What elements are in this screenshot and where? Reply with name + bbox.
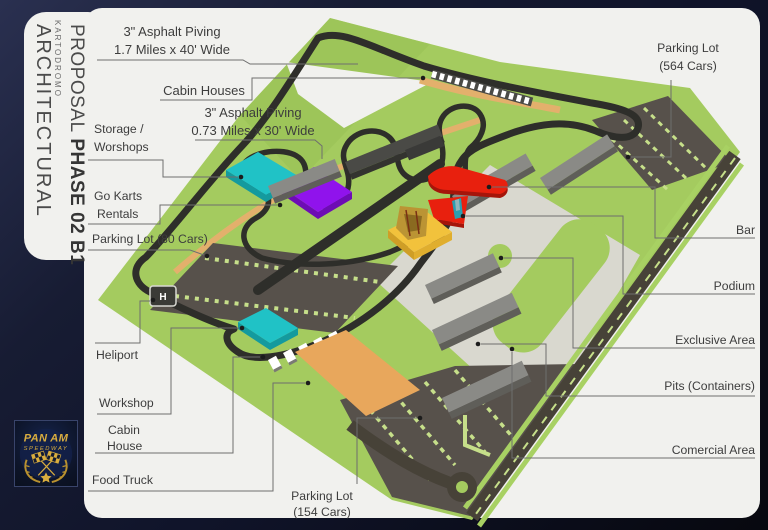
label-parking-80: Parking Lot (80 Cars) [92, 232, 208, 246]
label-exclusive-area: Exclusive Area [675, 333, 755, 347]
label-storage-line1: Storage / [94, 122, 144, 136]
label-heliport: Heliport [96, 348, 139, 362]
label-parking-564-line2: (564 Cars) [659, 59, 717, 73]
pan-am-speedway-logo: PAN AM SPEEDWAY [14, 420, 78, 487]
label-gokarts-line2: Rentals [97, 207, 138, 221]
logo-panam-text: PAN AM [24, 432, 69, 444]
label-asphalt-1-7-line1: 3" Asphalt Piving [123, 24, 220, 39]
label-asphalt-1-7-line2: 1.7 Miles x 40' Wide [114, 42, 230, 57]
architectural-title: ARCHITECTURAL [31, 24, 54, 218]
label-storage-line2: Worshops [94, 140, 149, 154]
label-workshop: Workshop [99, 396, 154, 410]
label-gokarts-line1: Go Karts [94, 189, 142, 203]
label-comercial-area: Comercial Area [672, 443, 756, 457]
kartodromo-title: KARTODROMO [53, 20, 62, 98]
label-asphalt-0-73-line1: 3" Asphalt Piving [204, 105, 301, 120]
proposal-board: H [0, 0, 768, 530]
label-podium: Podium [714, 279, 755, 293]
heliport-h-mark: H [159, 292, 166, 303]
heliport-pad: H [150, 286, 176, 306]
label-cabin-line2: House [107, 439, 142, 453]
label-parking-564-line1: Parking Lot [657, 41, 719, 55]
label-parking-154-line2: (154 Cars) [293, 505, 351, 519]
label-food-truck: Food Truck [92, 473, 154, 487]
label-bar: Bar [736, 223, 755, 237]
label-cabin-line1: Cabin [108, 423, 140, 437]
logo-art: PAN AM SPEEDWAY [15, 421, 77, 486]
label-pits-containers: Pits (Containers) [664, 379, 755, 393]
logo-speedway-text: SPEEDWAY [24, 446, 69, 452]
proposal-word: PROPOSAL [66, 24, 87, 133]
label-cabin-houses: Cabin Houses [163, 83, 245, 98]
proposal-phase-title: PROPOSAL PHASE 02 B1 [65, 24, 87, 265]
site-plan-scene: H [0, 0, 768, 530]
phase-word: PHASE 02 B1 [66, 138, 87, 265]
label-asphalt-0-73-line2: 0.73 Miles x 30' Wide [191, 123, 314, 138]
label-parking-154-line1: Parking Lot [291, 489, 353, 503]
